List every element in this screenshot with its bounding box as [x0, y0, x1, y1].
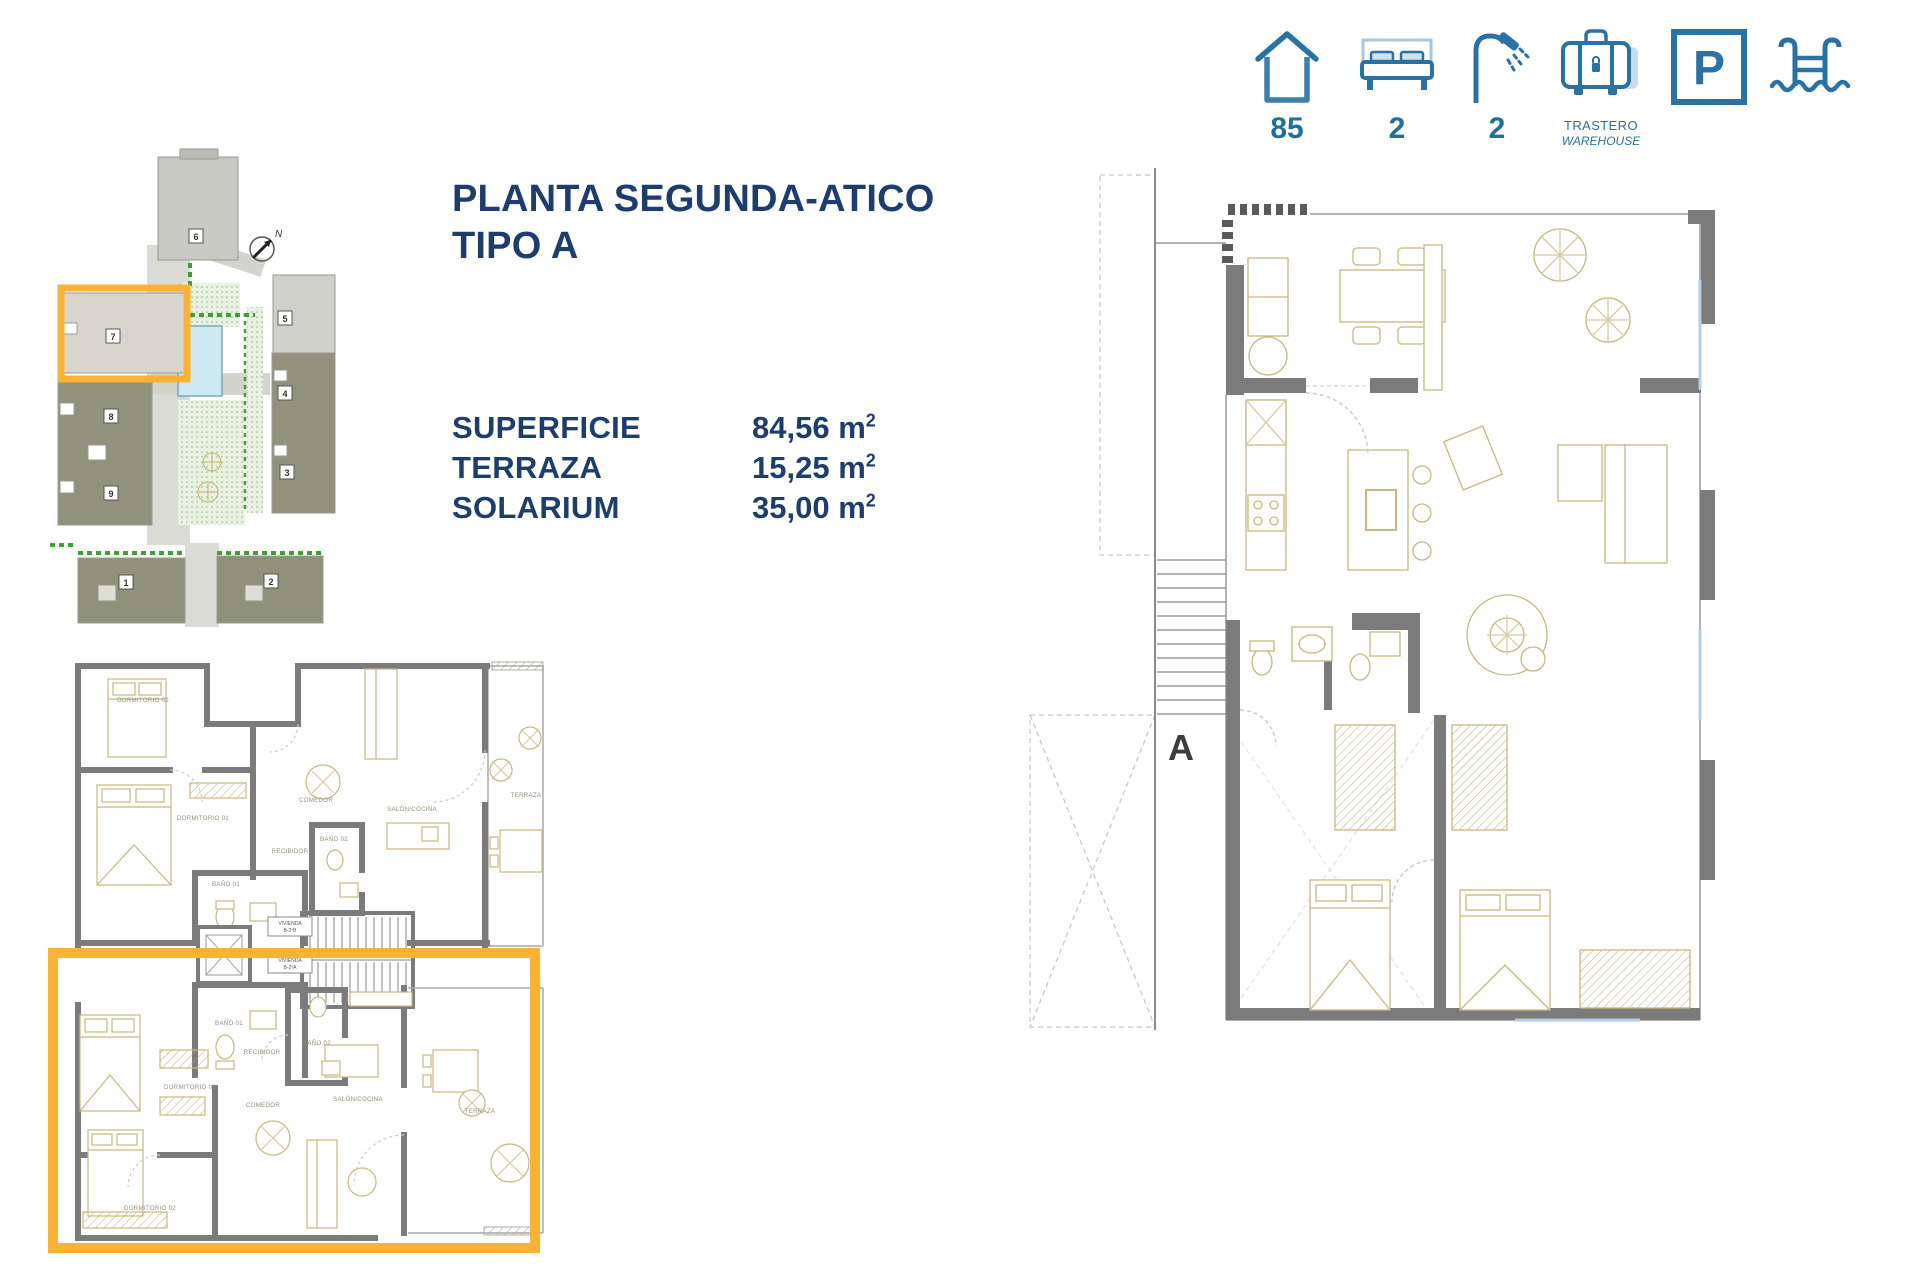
spec-row-solarium: SOLARIUM 35,00 m2 [452, 490, 876, 530]
svg-text:8: 8 [108, 412, 113, 422]
floor-plan-small: DORMITORIO 02 DORMITORIO 01 COMEDOR SALÓ… [40, 655, 560, 1265]
svg-text:RECIBIDOR: RECIBIDOR [244, 1049, 281, 1056]
bedrooms-value: 2 [1352, 112, 1442, 146]
svg-text:SALÓN/COCINA: SALÓN/COCINA [333, 1096, 383, 1103]
svg-text:TERRAZA: TERRAZA [465, 1108, 496, 1115]
bathrooms-value: 2 [1452, 112, 1542, 146]
storage-sublabel: WAREHOUSE [1555, 134, 1647, 148]
parking-letter: P [1693, 42, 1725, 95]
svg-text:COMEDOR: COMEDOR [246, 1102, 280, 1109]
page-title: PLANTA SEGUNDA-ATICO TIPO A [452, 176, 935, 270]
amenity-bathrooms: 2 [1452, 24, 1542, 146]
svg-text:9: 9 [108, 489, 113, 499]
lower-unit-highlighted: BAÑO 01 BAÑO 02 RECIBIDOR DORMITORIO 01 … [78, 985, 543, 1238]
svg-text:3: 3 [284, 468, 289, 478]
svg-text:B-2ºA: B-2ºA [284, 965, 298, 971]
parking-icon: P [1664, 24, 1754, 110]
balcony-rail [1222, 204, 1307, 263]
svg-text:DORMITORIO 01: DORMITORIO 01 [177, 815, 229, 822]
svg-text:BAÑO 02: BAÑO 02 [303, 1040, 331, 1047]
svg-text:B-2ºB: B-2ºB [284, 928, 298, 934]
north-label: N [275, 229, 283, 240]
spec-value: 35,00 m2 [752, 490, 876, 526]
upper-unit: DORMITORIO 02 DORMITORIO 01 COMEDOR SALÓ… [78, 662, 543, 946]
section-label: A [1168, 727, 1194, 768]
section-stairs: A [1155, 168, 1226, 1030]
floor-plan-large: A [1000, 160, 1740, 1040]
svg-text:6: 6 [193, 232, 198, 242]
svg-text:1: 1 [123, 578, 128, 588]
amenity-storage: TRASTERO WAREHOUSE [1555, 24, 1647, 148]
site-plan-map: N 6 7 8 9 5 4 3 1 2 [40, 145, 340, 645]
furniture [1246, 228, 1690, 1010]
storage-label: TRASTERO [1555, 118, 1647, 133]
north-compass-icon: N [250, 229, 283, 261]
svg-text:BAÑO 02: BAÑO 02 [320, 836, 348, 843]
svg-text:VIVIENDA: VIVIENDA [278, 958, 302, 964]
spec-value: 15,25 m2 [752, 450, 876, 486]
svg-text:7: 7 [110, 332, 115, 342]
svg-text:BAÑO 01: BAÑO 01 [215, 1020, 243, 1027]
title-line1: PLANTA SEGUNDA-ATICO [452, 176, 935, 223]
svg-text:VIVIENDA: VIVIENDA [278, 921, 302, 927]
svg-text:TERRAZA: TERRAZA [511, 792, 542, 799]
amenity-area: 85 [1242, 24, 1332, 146]
spec-label: TERRAZA [452, 450, 752, 486]
svg-text:DORMITORIO 02: DORMITORIO 02 [124, 1205, 176, 1212]
svg-text:RECIBIDOR: RECIBIDOR [272, 848, 309, 855]
svg-text:COMEDOR: COMEDOR [299, 797, 333, 804]
title-line2: TIPO A [452, 223, 935, 270]
amenity-parking: P [1664, 24, 1754, 110]
svg-text:4: 4 [282, 389, 287, 399]
svg-text:SALÓN/COCINA: SALÓN/COCINA [387, 806, 437, 813]
spec-label: SOLARIUM [452, 490, 752, 526]
spec-label: SUPERFICIE [452, 410, 752, 446]
svg-text:2: 2 [268, 577, 273, 587]
spec-row-terraza: TERRAZA 15,25 m2 [452, 450, 876, 490]
bed-icon [1352, 24, 1442, 110]
spec-value: 84,56 m2 [752, 410, 876, 446]
amenity-bedrooms: 2 [1352, 24, 1442, 146]
svg-text:BAÑO 01: BAÑO 01 [212, 881, 240, 888]
spec-table: SUPERFICIE 84,56 m2 TERRAZA 15,25 m2 SOL… [452, 410, 876, 530]
amenity-pool [1767, 24, 1857, 110]
spec-row-superficie: SUPERFICIE 84,56 m2 [452, 410, 876, 450]
pool-icon [1767, 24, 1857, 110]
svg-text:DORMITORIO 02: DORMITORIO 02 [117, 697, 169, 704]
house-icon [1242, 24, 1332, 110]
area-value: 85 [1242, 112, 1332, 146]
svg-text:DORMITORIO 01: DORMITORIO 01 [164, 1084, 216, 1091]
shower-icon [1452, 24, 1542, 110]
svg-text:5: 5 [282, 314, 287, 324]
warehouse-icon [1555, 24, 1647, 110]
